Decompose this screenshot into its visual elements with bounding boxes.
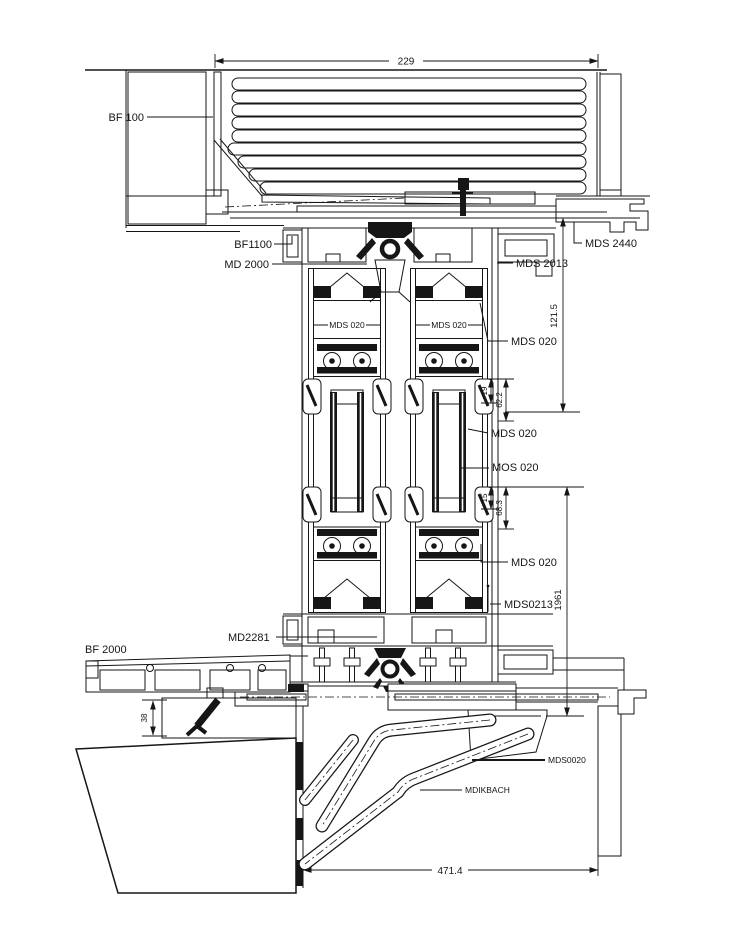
label-md2281: MD2281 [228, 632, 270, 644]
glazing-unit [303, 379, 391, 522]
bolt [452, 178, 473, 216]
dim-glazing-top-large: 62.2 [495, 392, 504, 408]
label-mds020-sash-lower: MDS 020 [511, 557, 557, 569]
dim-glazing-bottom-large: 68.3 [495, 500, 504, 516]
label-mds020-sash-left: MDS 020 [329, 320, 365, 330]
dim-shutter-box-width: 229 [398, 57, 415, 68]
sill-profile [86, 655, 304, 698]
dim-frame-head-height: 121.5 [549, 304, 560, 328]
support-bracket [305, 710, 547, 864]
label-mds0213: MDS0213 [504, 599, 553, 611]
section-drawing: 229 121.5 19 62.2 15 68.3 1961 38 471.4 … [0, 0, 750, 934]
technical-drawing-canvas: 229 121.5 19 62.2 15 68.3 1961 38 471.4 … [0, 0, 750, 934]
sealant-joint [187, 700, 218, 735]
roller-assembly-upper [314, 344, 380, 377]
label-mds0020: MDS0020 [548, 755, 586, 765]
label-bf2000: BF 2000 [85, 644, 127, 656]
shutter-box [214, 72, 600, 204]
insulation-coil [228, 78, 586, 194]
concrete-slab [76, 698, 303, 893]
dim-bracket-span: 471.4 [437, 866, 462, 877]
roller-assembly-lower [314, 527, 380, 561]
label-md2000: MD 2000 [224, 259, 269, 271]
dim-panel-height: 1961 [553, 589, 564, 610]
label-mds020-sash-right: MDS 020 [431, 320, 467, 330]
bottom-frame [283, 614, 624, 690]
masonry-pier-bottom [598, 690, 646, 856]
label-bf1100: BF1100 [234, 239, 272, 251]
masonry-pier-top [556, 74, 650, 232]
dim-sill-upstand: 38 [140, 713, 149, 722]
dim-glazing-top-small: 19 [480, 386, 489, 395]
label-mdikbach: MDIKBACH [465, 785, 510, 795]
mds2440-profile [556, 199, 648, 232]
label-mos020-glazing-lower: MOS 020 [492, 462, 538, 474]
label-mds020-glazing-upper: MDS 020 [491, 428, 537, 440]
label-mds2013: MDS 2013 [516, 258, 568, 270]
label-mds2440: MDS 2440 [585, 238, 637, 250]
label-mds020-frame: MDS 020 [511, 336, 557, 348]
dim-glazing-bottom-small: 15 [480, 493, 489, 502]
ceiling-slab [85, 70, 607, 232]
bracket-strut-upper [322, 720, 490, 826]
edge-angle-profile [618, 690, 646, 714]
label-bf100: BF 100 [109, 112, 144, 124]
